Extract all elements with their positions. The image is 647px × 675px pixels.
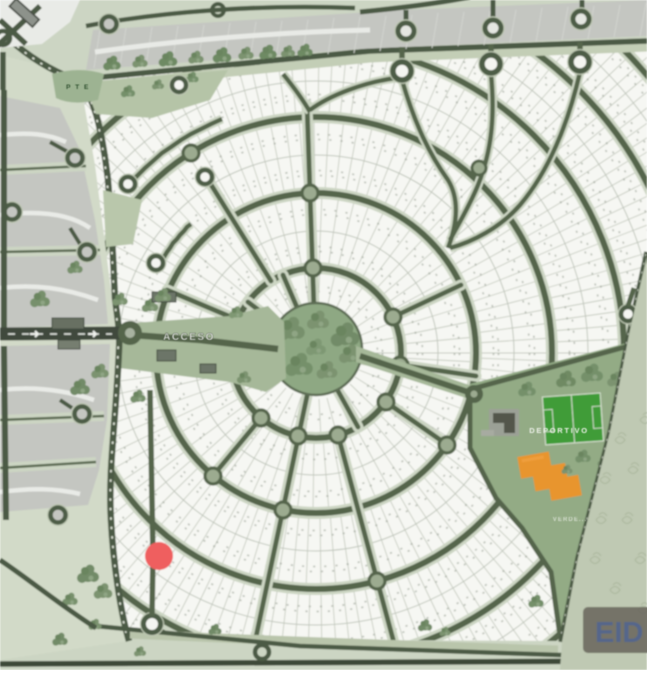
svg-text:P T E: P T E (66, 84, 90, 91)
svg-text:VERDE...: VERDE... (553, 517, 587, 523)
svg-text:EID: EID (595, 617, 643, 649)
svg-text:DEPORTIVO: DEPORTIVO (529, 426, 588, 435)
svg-text:ACCESO: ACCESO (163, 332, 215, 343)
